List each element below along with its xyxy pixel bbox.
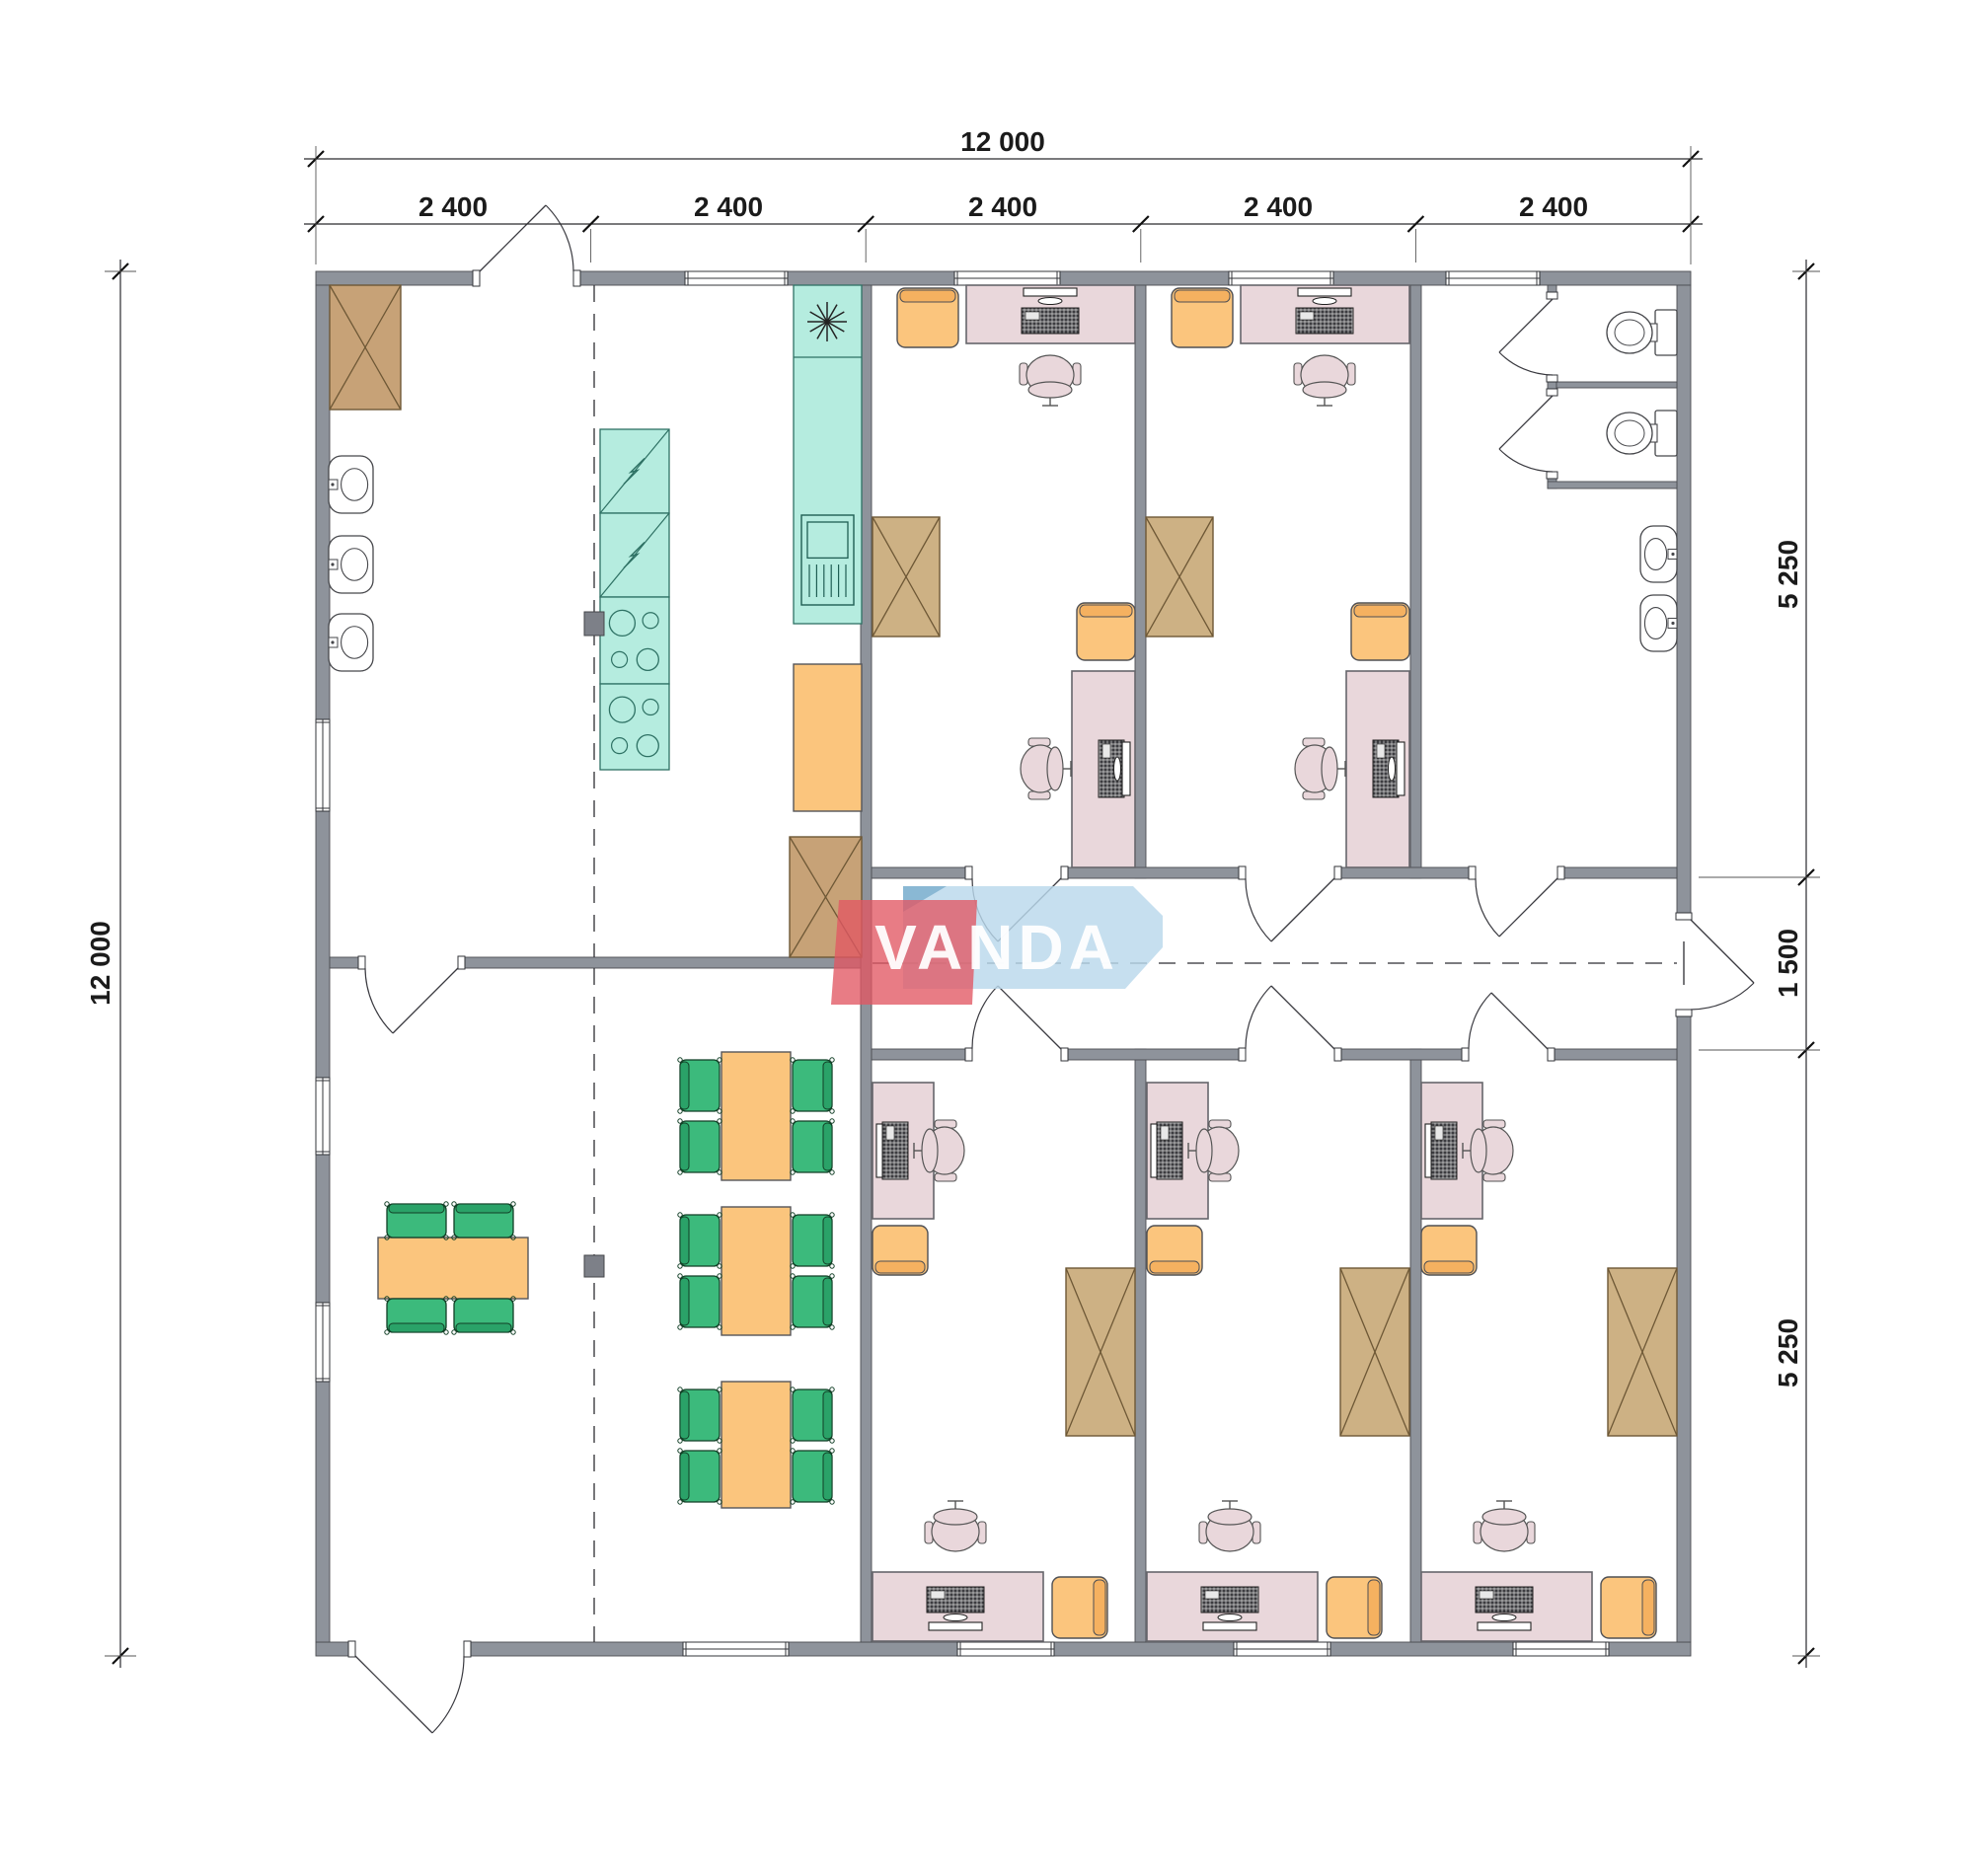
desk	[873, 1572, 1043, 1641]
office-chair	[1294, 355, 1355, 406]
office-chair	[1474, 1501, 1535, 1551]
dim-top-seg-2: 2 400	[694, 191, 763, 223]
armchair	[1351, 603, 1409, 660]
dining-chair	[678, 1274, 721, 1329]
armchair	[1601, 1577, 1656, 1638]
wall-sink	[1640, 595, 1677, 651]
column	[584, 1255, 604, 1277]
table	[721, 1052, 791, 1180]
dining-chair	[678, 1449, 721, 1504]
dim-right-seg-1: 5 250	[1773, 540, 1804, 609]
dining-chair	[452, 1202, 515, 1239]
dining-chair	[791, 1213, 834, 1268]
desk	[1072, 671, 1135, 867]
dim-top-seg-3: 2 400	[968, 191, 1037, 223]
cooktop	[600, 597, 669, 684]
dining-chair	[791, 1058, 834, 1113]
desk	[1346, 671, 1409, 867]
storage-cabinet	[1066, 1268, 1135, 1436]
storage-cabinet	[790, 837, 862, 957]
office-chair	[1295, 738, 1345, 799]
armchair	[1147, 1226, 1202, 1275]
table	[721, 1207, 791, 1335]
cooktop	[600, 684, 669, 770]
table	[378, 1238, 528, 1299]
wall-sink	[1640, 526, 1677, 582]
wall-sink	[329, 456, 373, 513]
table	[721, 1382, 791, 1508]
dining-chair	[452, 1297, 515, 1334]
armchair	[1421, 1226, 1477, 1275]
armchair	[1327, 1577, 1382, 1638]
storage-cabinet	[1340, 1268, 1409, 1436]
desk	[1147, 1572, 1318, 1641]
storage-cabinet	[1608, 1268, 1677, 1436]
dining-chair	[791, 1274, 834, 1329]
armchair	[1172, 288, 1233, 347]
dining-chair	[678, 1058, 721, 1113]
dining-chair	[791, 1449, 834, 1504]
office-chair	[1021, 738, 1071, 799]
desk	[1421, 1572, 1592, 1641]
doors	[355, 205, 1754, 1733]
dining-chair	[678, 1213, 721, 1268]
armchair	[873, 1226, 928, 1275]
dining-chair	[791, 1119, 834, 1174]
floor-plan-drawing	[0, 0, 1974, 1876]
floor-plan-canvas: VANDA 12 000 2 400 2 400 2 400 2 400 2 4…	[0, 0, 1974, 1876]
refrigerator	[600, 513, 669, 597]
column	[584, 612, 604, 636]
office-chair	[1020, 355, 1081, 406]
storage-cabinet	[1146, 517, 1213, 637]
armchair	[1052, 1577, 1107, 1638]
dining-chair	[791, 1388, 834, 1443]
dim-right-seg-3: 5 250	[1773, 1318, 1804, 1388]
dining-chair	[678, 1119, 721, 1174]
dim-top-seg-1: 2 400	[418, 191, 488, 223]
toilet	[1607, 411, 1677, 456]
dining-chair	[385, 1297, 448, 1334]
dim-top-total: 12 000	[960, 126, 1045, 158]
refrigerator	[600, 429, 669, 513]
dining-chair	[385, 1202, 448, 1239]
storage-cabinet	[873, 517, 940, 637]
dim-left-total: 12 000	[85, 921, 116, 1006]
desk	[1241, 285, 1409, 343]
armchair	[1077, 603, 1135, 660]
wall-sink	[329, 614, 373, 671]
dim-top-seg-5: 2 400	[1519, 191, 1588, 223]
office-chair	[1199, 1501, 1260, 1551]
armchair	[897, 288, 958, 347]
desk	[966, 285, 1135, 343]
toilet	[1607, 310, 1677, 355]
wall-sink	[329, 536, 373, 593]
dining-chair	[678, 1388, 721, 1443]
storage-cabinet	[330, 285, 401, 410]
dim-right-seg-2: 1 500	[1773, 929, 1804, 998]
office-chair	[925, 1501, 986, 1551]
dim-top-seg-4: 2 400	[1244, 191, 1313, 223]
table	[794, 664, 862, 811]
